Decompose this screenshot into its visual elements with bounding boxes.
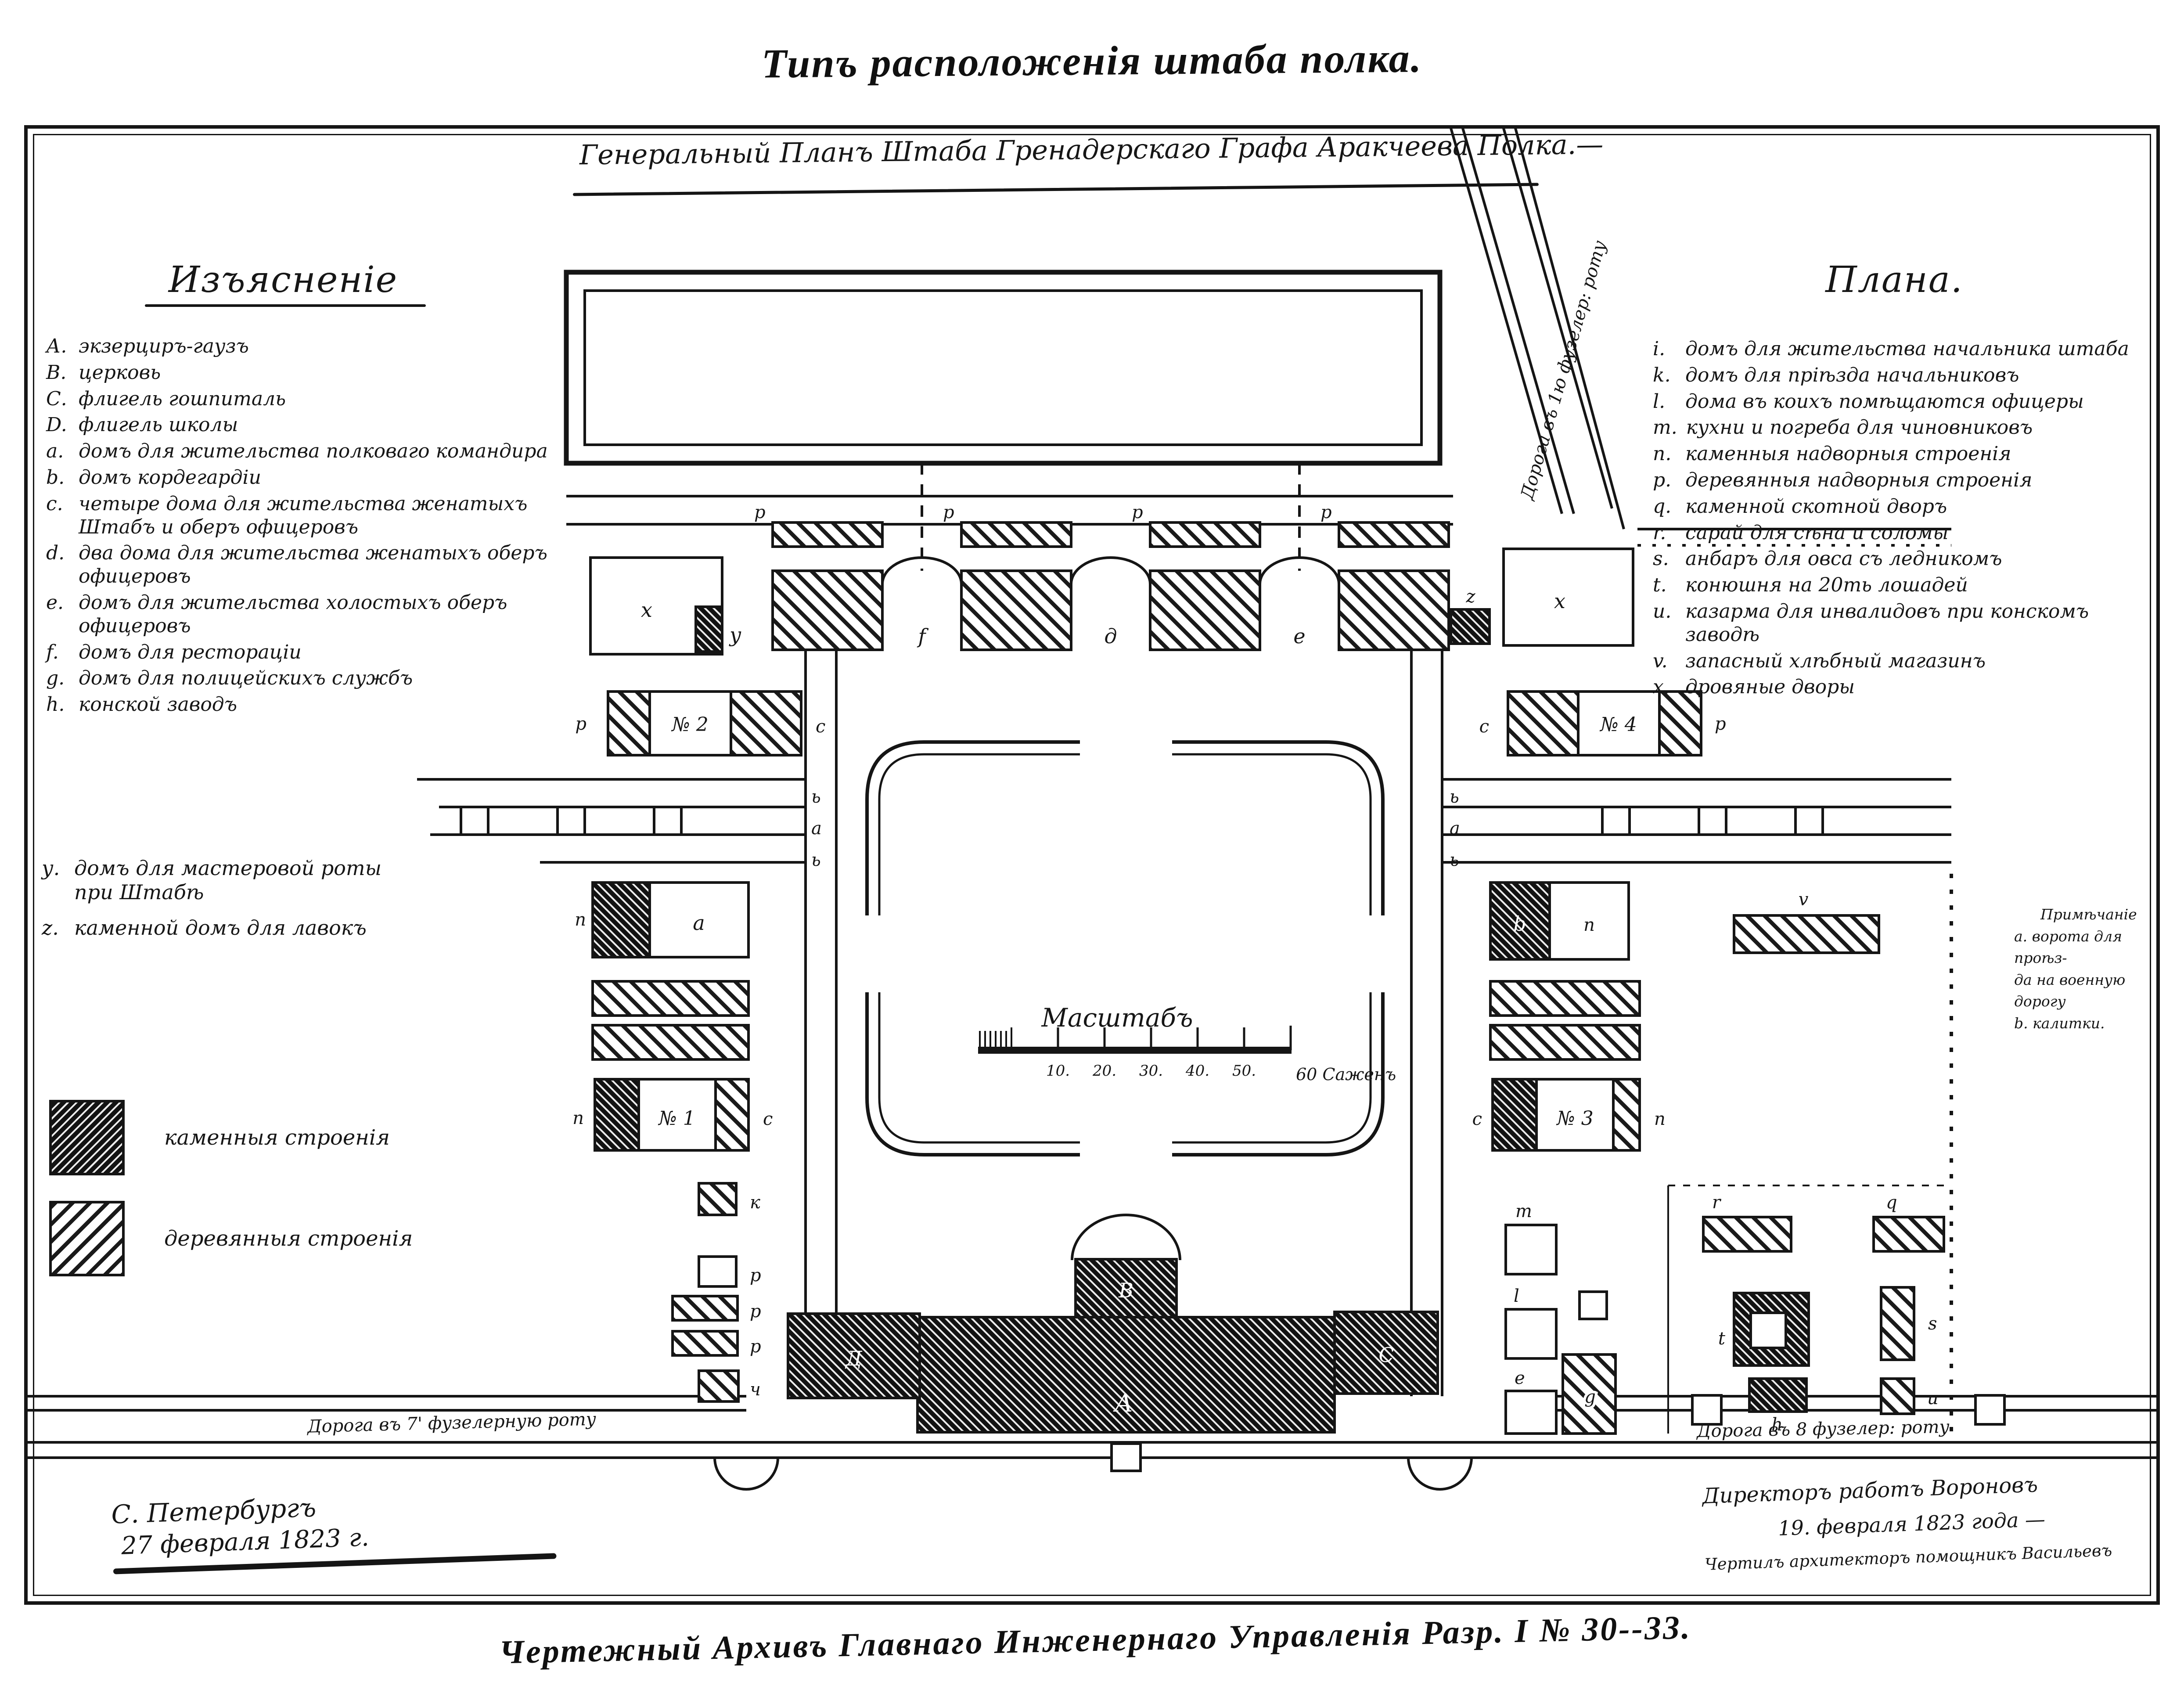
label-no1: № 1 xyxy=(658,1107,695,1130)
stone-swatch xyxy=(49,1100,125,1175)
label-no2: № 2 xyxy=(671,713,709,736)
legend-item: n.каменныя надворныя строенія xyxy=(1653,443,2164,466)
legend-item: i.домъ для жительства начальника штаба xyxy=(1653,338,2164,361)
scanned-regiment-plan: Типъ расположенія штаба полка. xyxy=(0,0,2184,1704)
label-no4: № 4 xyxy=(1599,713,1637,736)
legend-item: у.домъ для мастеровой роты при Штабѣ xyxy=(42,856,406,904)
svg-text:q: q xyxy=(1886,1192,1897,1213)
stone-swatch-label: каменныя строенія xyxy=(164,1125,390,1150)
wood-swatch xyxy=(49,1201,125,1276)
svg-text:ь: ь xyxy=(811,787,821,807)
svg-text:40.: 40. xyxy=(1185,1062,1209,1080)
label-p-b-house: п xyxy=(1583,915,1595,935)
label-school-D: Д xyxy=(845,1347,863,1370)
label-c-no2: с xyxy=(816,717,825,737)
diagonal-road-label: Дорога въ 1ю фузелер: роту xyxy=(1517,238,1610,503)
legend-right-items: i.домъ для жительства начальника штаба k… xyxy=(1653,338,2164,699)
label-c-no1: с xyxy=(763,1109,773,1129)
legend-left-secondary: у.домъ для мастеровой роты при Штабѣ z.к… xyxy=(42,856,406,952)
svg-text:д: д xyxy=(1104,624,1117,648)
svg-text:а: а xyxy=(811,818,822,839)
label-z-small: z xyxy=(1465,587,1475,607)
svg-text:t: t xyxy=(1718,1329,1726,1349)
svg-text:30.: 30. xyxy=(1139,1062,1163,1080)
legend-item: А.экзерциръ-гаузъ xyxy=(46,335,600,358)
scale-tick-labels: 10. 20. 30. 40. 50. 60 Саженъ xyxy=(1046,1062,1396,1084)
yard-buildings xyxy=(1506,1217,1944,1434)
label-p-no4: p xyxy=(1715,714,1726,734)
svg-text:к: к xyxy=(750,1192,760,1213)
svg-text:r: r xyxy=(1712,1192,1722,1213)
label-c-no3: с xyxy=(1472,1109,1482,1129)
legend-item: k.домъ для пріѣзда начальниковъ xyxy=(1653,364,2164,387)
svg-text:s: s xyxy=(1928,1314,1937,1334)
label-hospital-C: С xyxy=(1378,1343,1394,1367)
svg-text:p: p xyxy=(1320,502,1332,522)
label-x-right: x xyxy=(1554,589,1565,613)
label-p-a-house: п xyxy=(575,910,586,930)
label-b-house: b xyxy=(1513,912,1526,936)
margin-note: Примѣчаніе а. ворота для проѣз- да на во… xyxy=(2014,904,2168,1034)
svg-text:60 Саженъ: 60 Саженъ xyxy=(1296,1065,1396,1084)
svg-text:p: p xyxy=(754,502,766,522)
left-gates-letters: к р р р ч xyxy=(750,1192,761,1400)
stone-legend-row: каменныя строенія xyxy=(49,1100,413,1175)
svg-text:l: l xyxy=(1514,1286,1519,1306)
material-legend: каменныя строенія деревянныя строенія xyxy=(49,1100,413,1302)
page-title: Типъ расположенія штаба полка. xyxy=(0,28,2184,94)
label-no3: № 3 xyxy=(1556,1107,1594,1130)
house-x-left xyxy=(590,558,722,654)
svg-text:ь: ь xyxy=(811,850,821,870)
legend-item: f.домъ для рестораціи xyxy=(46,641,600,664)
label-exercise-A: А xyxy=(1113,1389,1133,1418)
exercise-house-outline xyxy=(566,272,1440,463)
legend-item: x.дровяные дворы xyxy=(1653,676,2164,699)
legend-left: Изъясненіе А.экзерциръ-гаузъ В.церковь С… xyxy=(46,259,600,720)
legend-item: b.домъ кордегардіи xyxy=(46,466,600,490)
svg-text:е: е xyxy=(1515,1368,1525,1388)
margin-note-line: а. ворота для проѣз- xyxy=(2014,926,2168,969)
legend-item: z.каменной домъ для лавокъ xyxy=(42,916,406,940)
legend-item: g.домъ для полицейскихъ службъ xyxy=(46,667,600,690)
signature-date: 19. февраля 1823 года — xyxy=(1777,1503,2155,1540)
legend-left-items: А.экзерциръ-гаузъ В.церковь С.флигель го… xyxy=(46,335,600,717)
legend-item: а.домъ для жительства полковаго командир… xyxy=(46,440,600,463)
svg-text:m: m xyxy=(1515,1201,1532,1221)
svg-text:10.: 10. xyxy=(1046,1062,1070,1080)
svg-text:50.: 50. xyxy=(1232,1062,1256,1080)
svg-text:20.: 20. xyxy=(1092,1062,1116,1080)
label-x-left: x xyxy=(641,598,652,622)
margin-note-title: Примѣчаніе xyxy=(2040,904,2168,926)
svg-text:р: р xyxy=(750,1337,761,1357)
legend-item: u.казарма для инвалидовъ при конскомъ за… xyxy=(1653,600,2164,647)
legend-right: Плана. i.домъ для жительства начальника … xyxy=(1653,259,2164,702)
legend-right-title: Плана. xyxy=(1758,259,2030,301)
legend-item: h.конской заводъ xyxy=(46,693,600,717)
label-a-house: а xyxy=(693,911,705,935)
legend-item: В.церковь xyxy=(46,361,600,385)
legend-item: s.анбаръ для овса съ ледникомъ xyxy=(1653,548,2164,571)
signoff-place-date: С. Петербургъ 27 февраля 1823 г. xyxy=(111,1484,556,1574)
svg-text:е: е xyxy=(1293,624,1305,648)
legend-item: p.деревянныя надворныя строенія xyxy=(1653,469,2164,492)
label-p-no1: п xyxy=(572,1108,584,1128)
svg-text:p: p xyxy=(1132,502,1143,522)
wood-swatch-label: деревянныя строенія xyxy=(164,1226,413,1251)
label-c-no4: с xyxy=(1479,717,1489,737)
legend-left-title: Изъясненіе xyxy=(121,259,446,301)
label-y-small: у xyxy=(729,623,741,647)
legend-item: t.конюшня на 20ть лошадей xyxy=(1653,574,2164,597)
legend-item: С.флигель гошпиталь xyxy=(46,388,600,411)
svg-text:f: f xyxy=(917,624,928,648)
street-gate-letters: ь а ь ь а ь xyxy=(811,787,1460,870)
legend-item: r.сарай для сѣна и соломы xyxy=(1653,522,2164,545)
svg-text:а: а xyxy=(1450,818,1460,839)
legend-item: m.кухни и погреба для чиновниковъ xyxy=(1653,416,2164,440)
label-p-no3: п xyxy=(1654,1109,1666,1129)
central-courtyard xyxy=(867,742,1383,1155)
svg-text:g: g xyxy=(1584,1387,1596,1407)
margin-note-line: b. калитки. xyxy=(2014,1012,2168,1034)
svg-text:р: р xyxy=(750,1265,761,1286)
legend-item: v.запасный хлѣбный магазинъ xyxy=(1653,650,2164,673)
scale-title: Масштабъ xyxy=(1041,1003,1193,1033)
dashed-axis-lines xyxy=(922,463,1299,571)
svg-text:ч: ч xyxy=(750,1380,761,1400)
svg-text:ь: ь xyxy=(1450,787,1459,807)
legend-item: D.флигель школы xyxy=(46,414,600,437)
legend-item: d.два дома для жительства женатыхъ оберъ… xyxy=(46,542,600,588)
legend-item: е.домъ для жительства холостыхъ оберъ оф… xyxy=(46,591,600,638)
wood-legend-row: деревянныя строенія xyxy=(49,1201,413,1276)
signoff-signatures: Директоръ работъ Вороновъ 19. февраля 18… xyxy=(1702,1468,2157,1574)
svg-text:ь: ь xyxy=(1450,850,1459,870)
grain-store-v xyxy=(1734,915,1879,953)
legend-item: с.четыре дома для жительства женатыхъ Шт… xyxy=(46,493,600,539)
legend-item: l.дома въ коихъ помѣщаются офицеры xyxy=(1653,390,2164,414)
label-church-B: В xyxy=(1118,1279,1133,1302)
svg-text:p: p xyxy=(943,502,954,522)
headquarters-complex xyxy=(788,1215,1438,1432)
svg-text:р: р xyxy=(750,1301,761,1322)
svg-text:u: u xyxy=(1927,1388,1939,1409)
left-gates-column xyxy=(673,1183,738,1401)
label-v: v xyxy=(1799,890,1809,910)
legend-item: q.каменной скотной дворъ xyxy=(1653,495,2164,519)
margin-note-line: да на военную дорогу xyxy=(2014,969,2168,1012)
house-x-right xyxy=(1451,549,1633,645)
legend-left-underline xyxy=(145,304,426,307)
archive-caption: Чертежный Архивъ Главнаго Инженернаго Уп… xyxy=(474,1608,1716,1672)
